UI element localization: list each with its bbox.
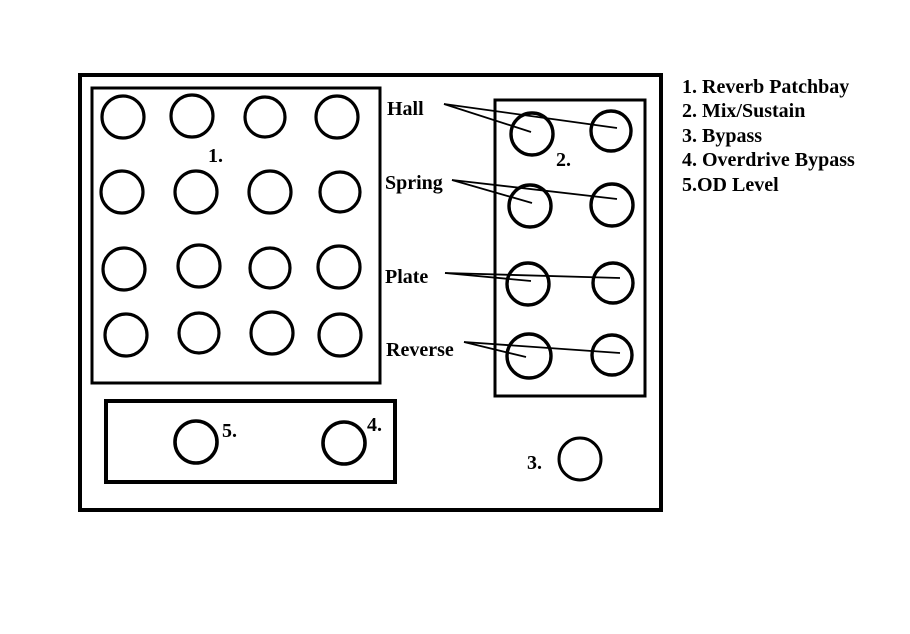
patchbay-number-label: 1. <box>208 145 223 167</box>
spring-label: Spring <box>385 172 443 194</box>
diagram-canvas: 1. Hall Spring Plate Reverse <box>0 0 910 634</box>
reverse-right-knob <box>592 335 632 375</box>
legend-item: 1. Reverb Patchbay <box>682 76 849 98</box>
patchbay-jack <box>251 312 293 354</box>
legend-item: 3. Bypass <box>682 125 762 147</box>
plate-label: Plate <box>385 266 428 288</box>
patchbay-jack <box>102 96 144 138</box>
patchbay-jack <box>320 172 360 212</box>
od-level-number-label: 5. <box>222 420 237 442</box>
patchbay-jack <box>316 96 358 138</box>
reverb-panel-number-label: 2. <box>556 149 571 171</box>
patchbay-jack <box>101 171 143 213</box>
bypass-number-label: 3. <box>527 452 542 474</box>
reverse-left-knob <box>507 334 551 378</box>
legend-item: 5.OD Level <box>682 174 779 196</box>
bypass-knob <box>559 438 601 480</box>
legend: 1. Reverb Patchbay 2. Mix/Sustain 3. Byp… <box>682 76 855 196</box>
pedal-layout-diagram: 1. Hall Spring Plate Reverse <box>0 0 910 634</box>
patchbay-jack <box>249 171 291 213</box>
patchbay-jack <box>318 246 360 288</box>
reverse-label: Reverse <box>386 339 454 361</box>
spring-right-knob <box>591 184 633 226</box>
plate-right-knob <box>593 263 633 303</box>
patchbay-jack <box>179 313 219 353</box>
hall-right-knob <box>591 111 631 151</box>
patchbay-jack <box>171 95 213 137</box>
patchbay-jack <box>319 314 361 356</box>
hall-label: Hall <box>387 98 424 120</box>
patchbay-jack <box>245 97 285 137</box>
patchbay-jack <box>105 314 147 356</box>
patchbay-jack <box>175 171 217 213</box>
hall-left-knob <box>511 113 553 155</box>
overdrive-bypass-knob <box>323 422 365 464</box>
od-level-knob <box>175 421 217 463</box>
plate-left-knob <box>507 263 549 305</box>
legend-item: 4. Overdrive Bypass <box>682 149 855 171</box>
legend-item: 2. Mix/Sustain <box>682 100 805 122</box>
patchbay-jack <box>250 248 290 288</box>
patchbay-jack <box>103 248 145 290</box>
overdrive-bypass-number-label: 4. <box>367 414 382 436</box>
patchbay-jack <box>178 245 220 287</box>
patchbay-jack-grid <box>101 95 361 356</box>
